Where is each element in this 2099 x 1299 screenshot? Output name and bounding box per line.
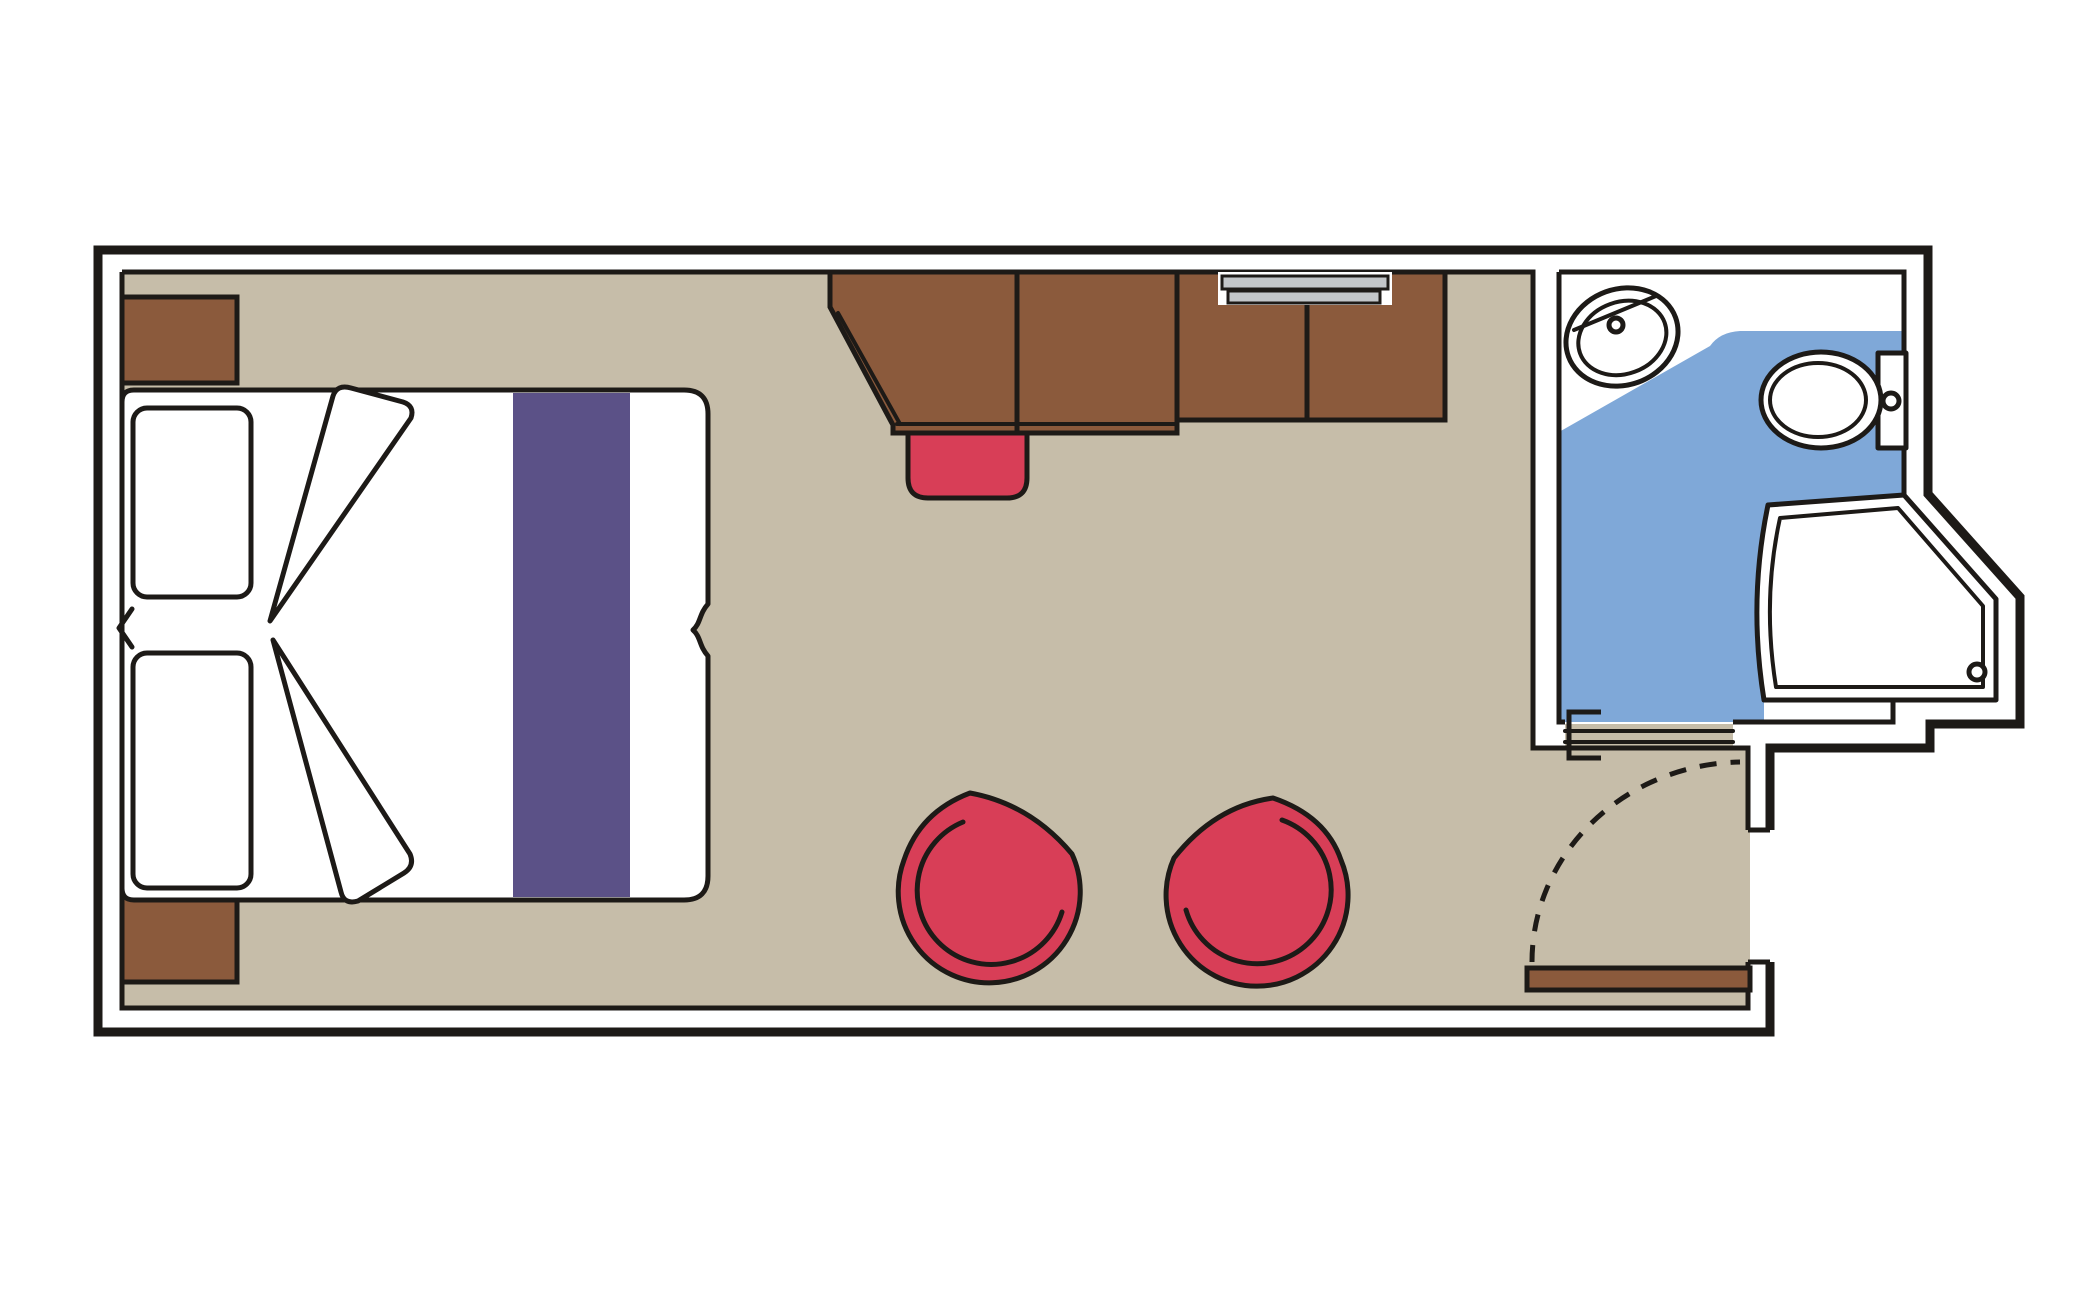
desk-stool [908,433,1027,498]
entry-door-leaf [1527,968,1750,990]
desk [830,272,1177,433]
floorplan-canvas [0,0,2099,1299]
bed-runner [513,393,630,897]
flush-button-icon [1883,393,1899,409]
toilet-bowl [1761,352,1881,448]
toilet [1761,352,1906,448]
shower-drain [1969,664,1985,680]
wardrobe [1177,272,1445,420]
nightstand-bottom [122,897,237,982]
pillow-top [133,408,251,597]
wardrobe-hanging-rail [1222,276,1388,303]
faucet-icon [1609,318,1623,332]
pillow-bottom [133,653,251,888]
wall-bathroom-partition [1533,250,1559,748]
nightstand-top [122,297,237,383]
floorplan-svg [0,0,2099,1299]
double-bed [119,387,708,902]
